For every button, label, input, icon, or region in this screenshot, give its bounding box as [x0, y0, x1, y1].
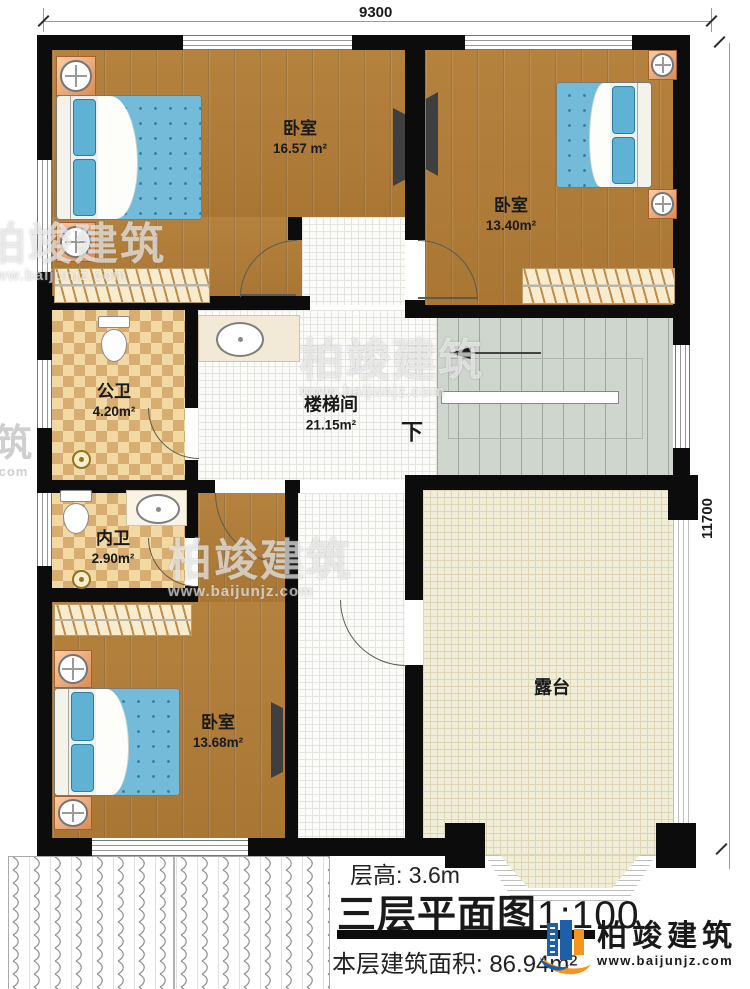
- tv-icon: [271, 702, 283, 778]
- door-leaf-bedroom2: [418, 297, 477, 299]
- brand-url: www.baijunjz.com: [597, 953, 737, 968]
- wall-hall-south-2: [285, 480, 300, 493]
- wall-innerbath-bedroom-divider: [37, 588, 198, 602]
- lamp-icon: [651, 192, 675, 217]
- dimension-right-value: 11700: [699, 494, 716, 543]
- nightstand: [54, 796, 92, 830]
- sink-basin: [216, 322, 264, 357]
- lamp-icon: [60, 226, 92, 258]
- wardrobe: [54, 604, 192, 636]
- window-left-innerbath: [37, 490, 52, 566]
- terrace-floor: [423, 490, 673, 855]
- wall-partition-bedrooms: [405, 50, 425, 240]
- wall-top-2: [352, 35, 465, 50]
- dimension-line-top: [43, 21, 712, 22]
- toilet: [98, 316, 130, 362]
- window-left-bedroom: [37, 160, 52, 272]
- wall-terrace-west-2: [405, 665, 423, 838]
- roof-tile-area: [8, 856, 330, 989]
- brand-text: 柏竣建筑 www.baijunjz.com: [597, 920, 737, 968]
- bed-blanket: [98, 96, 138, 219]
- bed-mattress: [557, 83, 610, 187]
- dimension-tick-icon: [713, 36, 725, 48]
- wall-publicbath-east-2: [185, 460, 198, 480]
- roof-tile-pattern: [9, 857, 329, 989]
- wall-top-1: [37, 35, 183, 50]
- wall-left-1: [37, 35, 52, 160]
- terrace-pillar-bottomright: [656, 823, 696, 868]
- wardrobe: [54, 268, 210, 303]
- window-bottom-bedroom: [92, 840, 248, 856]
- watermark: 筑.com: [0, 425, 34, 479]
- brand-name: 柏竣建筑: [597, 920, 737, 953]
- bed-blanket: [589, 83, 610, 187]
- window-top-right: [465, 35, 632, 50]
- room-label-stairwell: 楼梯间21.15m²: [304, 394, 358, 435]
- tv-icon: [393, 108, 405, 186]
- lamp-icon: [60, 60, 92, 92]
- wall-bedroom-bottom-east: [285, 493, 298, 856]
- lamp-icon: [651, 53, 675, 78]
- stair-direction-arrow-icon: [449, 347, 471, 359]
- window-left-publicbath: [37, 360, 52, 428]
- bed-pillows: [69, 689, 96, 795]
- brand-logo: 柏竣建筑 www.baijunjz.com: [543, 920, 737, 974]
- room-label-bedroom3: 卧室13.68m²: [193, 712, 243, 752]
- toilet: [60, 490, 92, 534]
- room-label-publicbath: 公卫4.20m²: [93, 381, 136, 421]
- hall-corridor-top: [302, 217, 405, 305]
- wall-left-4: [37, 566, 52, 856]
- room-label-bedroom2: 卧室13.40m²: [486, 195, 536, 235]
- dimension-top-value: 9300: [355, 4, 396, 21]
- stair-direction-line: [471, 352, 541, 354]
- room-label-innerbath: 内卫2.90m²: [92, 528, 135, 568]
- wall-terrace-west-1: [405, 475, 423, 600]
- sink-basin: [136, 494, 180, 524]
- wall-publicbath-east-1: [185, 310, 198, 408]
- bed-headboard: [55, 689, 69, 795]
- wall-terrace-north: [405, 475, 673, 490]
- wall-bottom-2: [248, 838, 447, 856]
- double-bed: [556, 82, 652, 188]
- brand-logo-icon: [543, 920, 593, 974]
- tv-icon: [426, 92, 438, 176]
- bed-headboard: [637, 83, 651, 187]
- lamp-icon: [58, 799, 89, 827]
- nightstand: [56, 222, 96, 262]
- lamp-icon: [58, 654, 89, 685]
- bed-pillows: [610, 83, 637, 187]
- room-label-bedroom1: 卧室16.57 m²: [273, 118, 327, 158]
- nightstand: [56, 56, 96, 96]
- floor-drain-icon: [72, 450, 91, 469]
- nightstand: [648, 189, 677, 219]
- wall-hall-south-1: [198, 480, 215, 493]
- nightstand: [54, 650, 92, 688]
- bed-pillows: [71, 96, 98, 219]
- wall-partition-bedrooms-stub: [405, 300, 425, 318]
- room-label-terrace: 露台: [534, 676, 570, 699]
- bed-mattress: [96, 689, 179, 795]
- bed-blanket: [96, 689, 129, 795]
- window-top-left: [183, 35, 352, 50]
- floor-drain-icon: [72, 570, 91, 589]
- floor-plan-canvas: 下: [0, 0, 750, 989]
- door-leaf-bedroom1: [240, 294, 296, 296]
- double-bed: [54, 688, 180, 796]
- wall-left-2: [37, 272, 52, 360]
- nightstand: [648, 50, 677, 80]
- bed-headboard: [57, 96, 71, 219]
- terrace-railing-right: [673, 520, 692, 823]
- wardrobe: [522, 268, 675, 304]
- hall-corridor-bottom: [298, 493, 405, 838]
- double-bed: [56, 95, 202, 220]
- wall-bedroom2-bottom: [425, 305, 673, 318]
- wall-east-2: [673, 448, 690, 475]
- stair-handrail: [441, 391, 619, 404]
- wall-bottom-1: [37, 838, 92, 856]
- window-east-stairs: [675, 345, 690, 448]
- dimension-tick-icon: [715, 843, 727, 855]
- dimension-line-right: [729, 43, 730, 869]
- wall-bedroom1-door-stub: [288, 217, 302, 240]
- stairs-down-label: 下: [401, 419, 423, 448]
- bed-mattress: [98, 96, 201, 219]
